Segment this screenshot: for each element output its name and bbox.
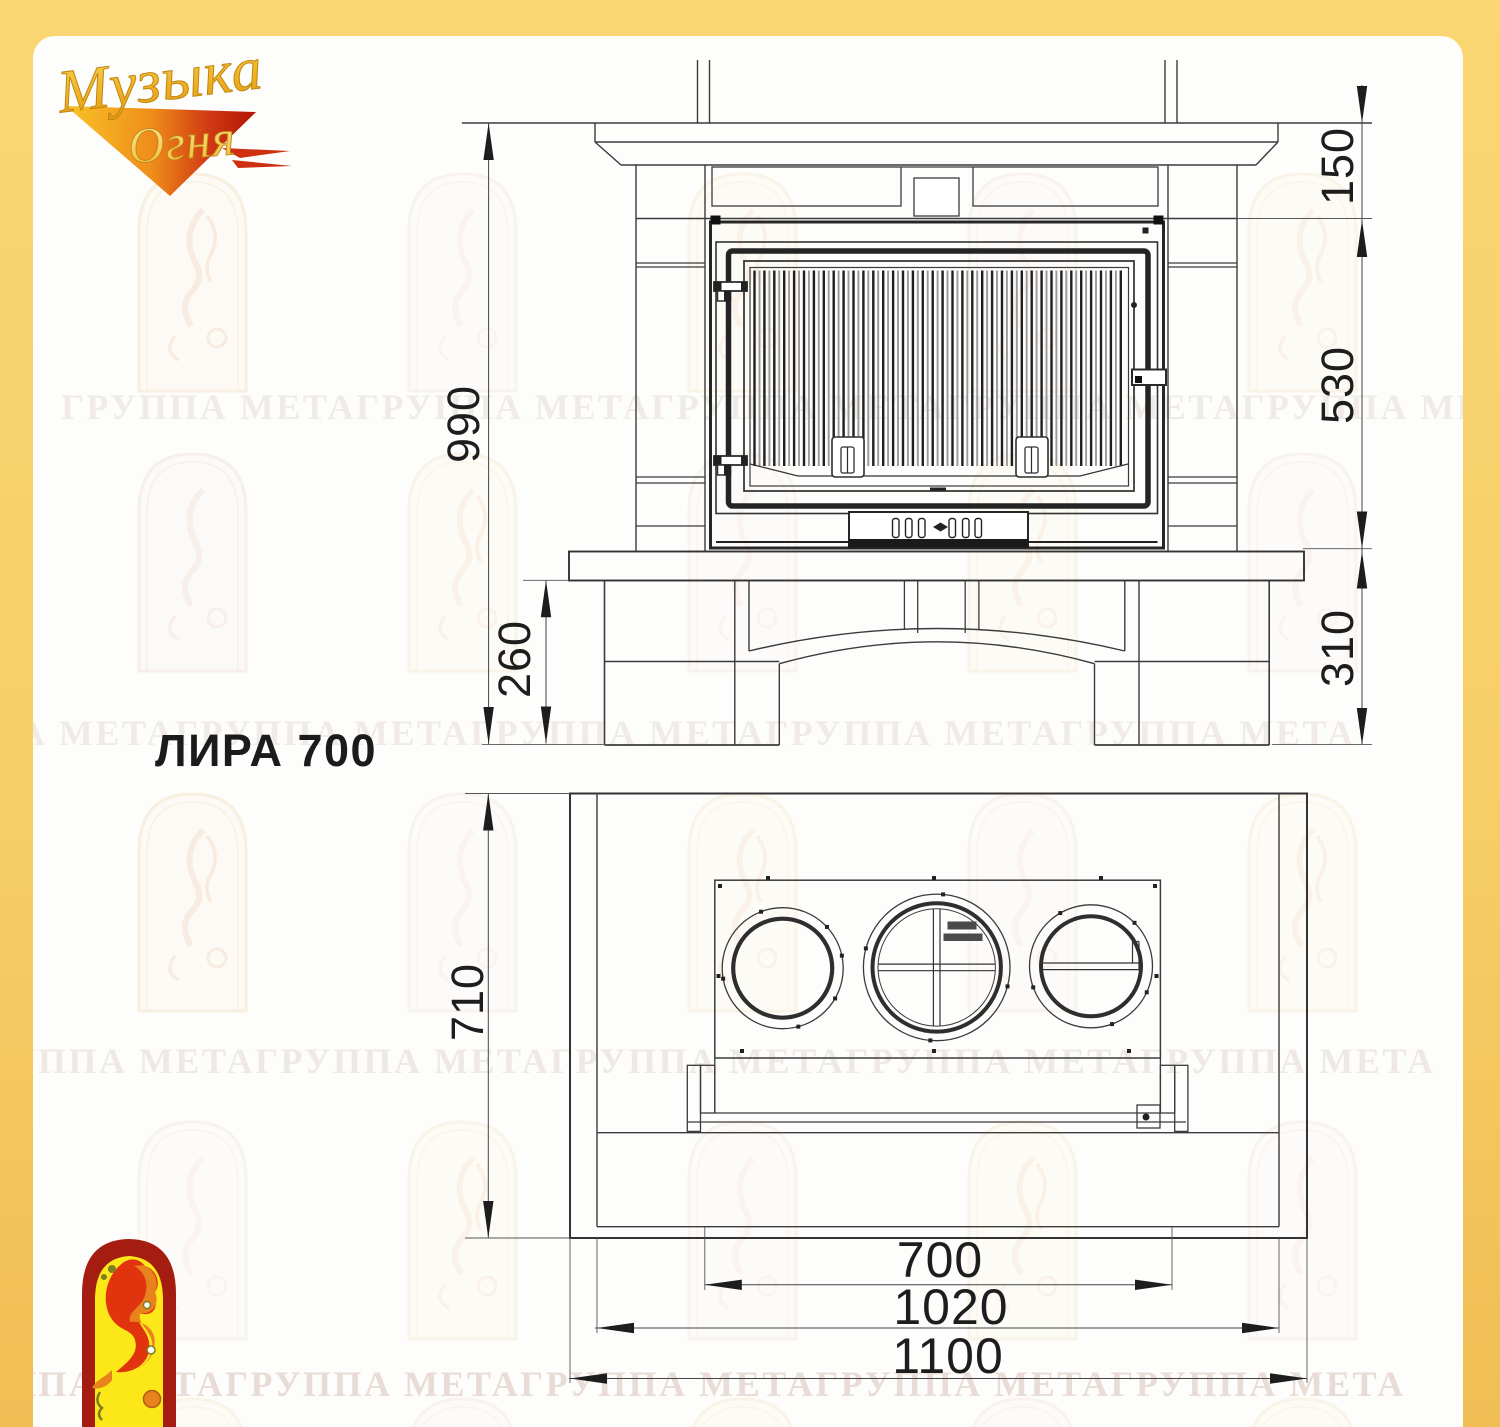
svg-text:Огня: Огня <box>126 109 238 174</box>
svg-text:1100: 1100 <box>892 1328 1004 1384</box>
svg-text:150: 150 <box>1312 127 1363 205</box>
svg-text:ГРУППА МЕТАГРУППА МЕТАГРУППА М: ГРУППА МЕТАГРУППА МЕТАГРУППА МЕТАГРУППА … <box>0 1041 1436 1081</box>
svg-text:260: 260 <box>489 620 540 698</box>
svg-text:990: 990 <box>438 385 489 463</box>
svg-text:ГРУППА МЕТАГРУППА МЕТАГРУППА М: ГРУППА МЕТАГРУППА МЕТАГРУППА МЕТАГРУППА … <box>0 1364 1406 1404</box>
svg-text:ЛИРА 700: ЛИРА 700 <box>155 725 377 776</box>
svg-text:310: 310 <box>1312 609 1363 687</box>
svg-text:1020: 1020 <box>893 1279 1008 1335</box>
svg-text:ГРУППА МЕТАГРУППА МЕТАГРУППА М: ГРУППА МЕТАГРУППА МЕТАГРУППА МЕТАГРУППА … <box>61 387 1500 427</box>
svg-text:710: 710 <box>442 963 493 1041</box>
svg-text:530: 530 <box>1312 346 1363 424</box>
